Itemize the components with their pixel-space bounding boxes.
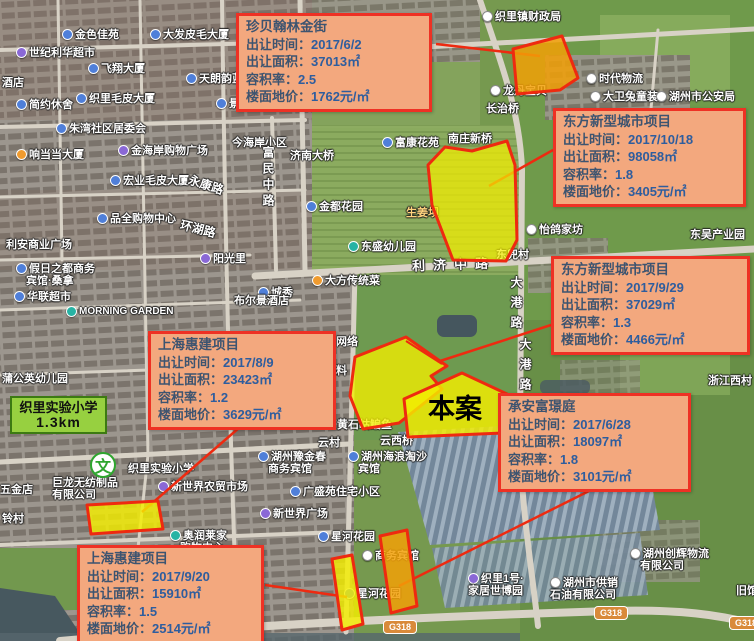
leader-line [142,427,240,512]
field-value: 3101元/㎡ [573,469,632,484]
leader-lines [142,44,591,597]
callout-row: 楼面地价：2514元/㎡ [87,620,254,638]
callout-row: 容积率：1.8 [508,451,681,469]
field-value: 1762元/㎡ [311,89,370,104]
callout-row: 容积率：1.2 [158,389,326,407]
callout-row: 楼面地价：3405元/㎡ [563,183,736,201]
field-value: 15910㎡ [152,586,201,601]
field-value: 1.8 [615,167,633,182]
field-label: 楼面地价： [563,184,628,199]
field-value: 2017/6/28 [573,417,631,432]
school-distance-badge: 织里实验小学 1.3km [10,396,107,434]
field-label: 出让面积： [563,149,628,164]
site-label: 本案 [428,393,483,424]
parcel-name: 东方新型城市项目 [561,261,740,279]
field-label: 出让时间： [87,569,152,584]
callout-row: 楼面地价：3629元/㎡ [158,406,326,424]
field-label: 容积率： [561,315,613,330]
field-value: 2017/9/29 [626,280,684,295]
parcel-name: 上海惠建项目 [87,550,254,568]
field-label: 出让时间： [246,37,311,52]
field-value: 2017/8/9 [223,355,274,370]
school-name: 织里实验小学 [12,400,105,415]
field-value: 3629元/㎡ [223,407,282,422]
callout-row: 出让面积：98058㎡ [563,148,736,166]
field-label: 容积率： [246,72,298,87]
parcel-fields: 出让时间：2017/9/29出让面积：37029㎡容积率：1.3楼面地价：446… [561,279,740,349]
field-label: 出让面积： [561,297,626,312]
field-label: 容积率： [563,167,615,182]
field-label: 容积率： [158,390,210,405]
field-label: 容积率： [508,452,560,467]
callout-row: 出让面积：15910㎡ [87,585,254,603]
parcel-name: 珍贝翰林金街 [246,18,422,36]
field-value: 2017/6/2 [311,37,362,52]
field-value: 23423㎡ [223,372,272,387]
field-value: 3405元/㎡ [628,184,687,199]
field-value: 37029㎡ [626,297,675,312]
callout-row: 容积率：1.3 [561,314,740,332]
field-label: 出让面积： [87,586,152,601]
field-value: 2017/10/18 [628,132,693,147]
land-callout: 上海惠建项目 出让时间：2017/9/20出让面积：15910㎡容积率：1.5楼… [77,545,264,641]
land-callout: 上海惠建项目 出让时间：2017/8/9出让面积：23423㎡容积率：1.2楼面… [148,331,336,430]
field-value: 1.5 [139,604,157,619]
callout-row: 容积率：2.5 [246,71,422,89]
parcel-huijian-23423 [87,501,163,534]
callout-row: 出让时间：2017/6/2 [246,36,422,54]
parcel-fields: 出让时间：2017/9/20出让面积：15910㎡容积率：1.5楼面地价：251… [87,568,254,638]
callout-row: 出让面积：37029㎡ [561,296,740,314]
school-distance: 1.3km [12,415,105,430]
field-label: 出让面积： [508,434,573,449]
land-callout: 东方新型城市项目 出让时间：2017/10/18出让面积：98058㎡容积率：1… [553,108,746,207]
callout-row: 出让时间：2017/8/9 [158,354,326,372]
callout-row: 楼面地价：3101元/㎡ [508,468,681,486]
field-label: 出让时间： [561,280,626,295]
field-label: 楼面地价： [508,469,573,484]
field-label: 楼面地价： [158,407,223,422]
field-label: 容积率： [87,604,139,619]
callout-row: 容积率：1.8 [563,166,736,184]
land-callout: 珍贝翰林金街 出让时间：2017/6/2出让面积：37013㎡容积率：2.5楼面… [236,13,432,112]
callout-row: 楼面地价：4466元/㎡ [561,331,740,349]
field-label: 楼面地价： [87,621,152,636]
field-value: 1.3 [613,315,631,330]
land-transaction-map: 金色佳苑大发皮毛大厦世纪利华超市飞翔大厦天朗韵蓝城酒店织里毛皮大厦简约休舍景朱湾… [0,0,754,641]
callout-row: 出让面积：37013㎡ [246,53,422,71]
leader-line [437,325,551,362]
callout-row: 出让面积：18097㎡ [508,433,681,451]
field-label: 出让时间： [563,132,628,147]
callout-row: 出让时间：2017/9/29 [561,279,740,297]
field-value: 2017/9/20 [152,569,210,584]
parcel-chengan [380,530,417,613]
leader-line [399,490,591,586]
callout-row: 容积率：1.5 [87,603,254,621]
callout-row: 楼面地价：1762元/㎡ [246,88,422,106]
field-label: 出让面积： [246,54,311,69]
field-label: 出让时间： [158,355,223,370]
land-callout: 承安富璟庭 出让时间：2017/6/28出让面积：18097㎡容积率：1.8楼面… [498,393,691,492]
land-callout: 东方新型城市项目 出让时间：2017/9/29出让面积：37029㎡容积率：1.… [551,256,750,355]
field-label: 出让面积： [158,372,223,387]
field-value: 2.5 [298,72,316,87]
field-value: 98058㎡ [628,149,677,164]
field-label: 楼面地价： [246,89,311,104]
parcel-dongfang-98058 [428,141,517,261]
parcel-fields: 出让时间：2017/6/2出让面积：37013㎡容积率：2.5楼面地价：1762… [246,36,422,106]
parcel-name: 承安富璟庭 [508,398,681,416]
field-label: 楼面地价： [561,332,626,347]
field-value: 18097㎡ [573,434,622,449]
field-value: 1.2 [210,390,228,405]
parcel-huijian-15910 [332,555,363,630]
callout-row: 出让面积：23423㎡ [158,371,326,389]
parcel-fields: 出让时间：2017/10/18出让面积：98058㎡容积率：1.8楼面地价：34… [563,131,736,201]
callout-row: 出让时间：2017/6/28 [508,416,681,434]
field-value: 37013㎡ [311,54,360,69]
parcel-name: 东方新型城市项目 [563,113,736,131]
callout-row: 出让时间：2017/9/20 [87,568,254,586]
parcel-name: 上海惠建项目 [158,336,326,354]
field-value: 1.8 [560,452,578,467]
parcel-fields: 出让时间：2017/8/9出让面积：23423㎡容积率：1.2楼面地价：3629… [158,354,326,424]
callout-row: 出让时间：2017/10/18 [563,131,736,149]
field-value: 2514元/㎡ [152,621,211,636]
parcel-zhenbei-hanlin [513,36,578,94]
field-label: 出让时间： [508,417,573,432]
field-value: 4466元/㎡ [626,332,685,347]
parcel-fields: 出让时间：2017/6/28出让面积：18097㎡容积率：1.8楼面地价：310… [508,416,681,486]
